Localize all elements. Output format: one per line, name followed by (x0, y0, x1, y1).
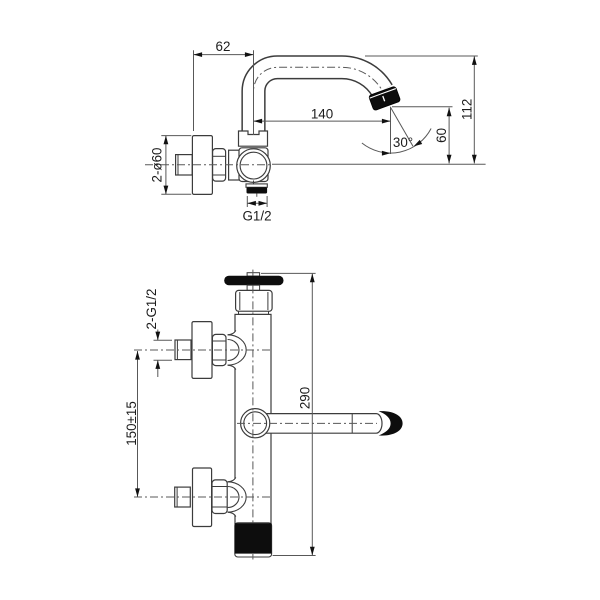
svg-text:2-ø60: 2-ø60 (150, 148, 165, 183)
svg-text:112: 112 (460, 99, 475, 120)
svg-text:G1/2: G1/2 (242, 209, 271, 224)
svg-text:60: 60 (434, 128, 449, 143)
svg-text:140: 140 (311, 107, 333, 122)
svg-text:62: 62 (216, 39, 231, 54)
svg-text:2-G1/2: 2-G1/2 (144, 289, 159, 330)
svg-text:150±15: 150±15 (124, 401, 139, 446)
svg-text:290: 290 (297, 387, 312, 409)
svg-text:30°: 30° (393, 135, 413, 150)
